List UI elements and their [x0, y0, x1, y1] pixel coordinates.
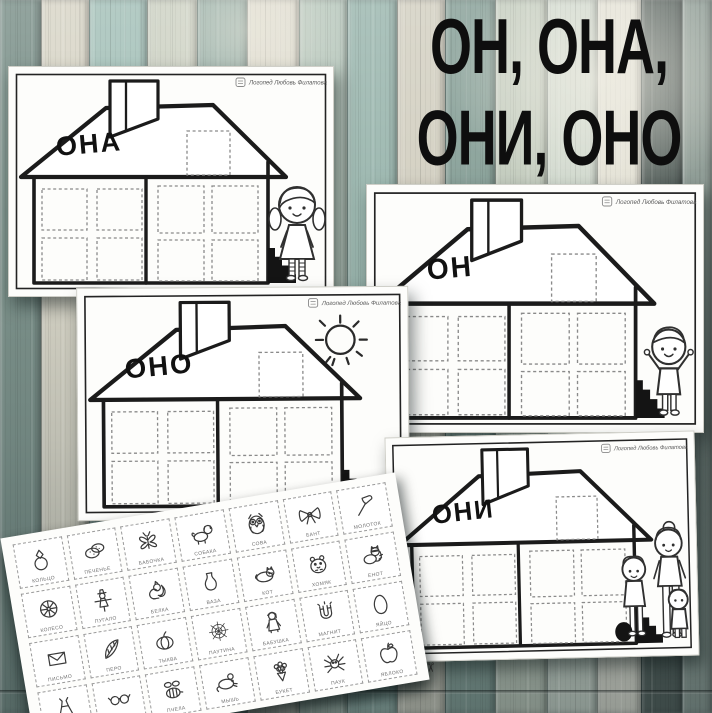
- cat-icon: [247, 557, 281, 589]
- card-label: КОЛЕСО: [40, 624, 64, 635]
- card-label: ПАУК: [331, 679, 346, 688]
- picture-card: БУКЕТ: [253, 648, 309, 701]
- feather-icon: [94, 633, 128, 665]
- picture-card: БЕЛКА: [129, 568, 185, 621]
- butterfly-icon: [131, 525, 165, 557]
- card-label: ПЧЕЛА: [167, 705, 187, 713]
- card-label: МЫШЬ: [221, 696, 240, 706]
- spiderweb-icon: [202, 615, 236, 647]
- hamster-icon: [301, 548, 335, 580]
- logo: Логопед Любовь Филатова: [602, 197, 697, 206]
- magnet-icon: [310, 597, 344, 629]
- picture-card: ТЫКВА: [137, 617, 193, 670]
- card-label: МАГНИТ: [318, 629, 342, 640]
- worksheet-oni: Логопед Любовь Филатова ОНИ: [384, 431, 699, 663]
- scarecrow-icon: [85, 584, 119, 616]
- picture-card: ПИСЬМО: [29, 635, 85, 688]
- picture-card: ЕНОТ: [345, 531, 401, 584]
- card-label: ХОМЯК: [312, 579, 333, 589]
- picture-card: МОЛОТОК: [336, 482, 392, 535]
- picture-card: ПЛАТЬЕ: [37, 684, 93, 713]
- apple-icon: [372, 637, 406, 669]
- mouse-icon: [210, 664, 244, 696]
- picture-card: МЫШЬ: [199, 657, 255, 710]
- hammer-icon: [347, 489, 381, 521]
- roof-label: ОН: [426, 250, 475, 287]
- card-label: ЯЙЦО: [375, 620, 392, 630]
- dog-icon: [185, 516, 219, 548]
- picture-card: ВАЗА: [183, 559, 239, 612]
- card-label: КОЛЬЦО: [32, 575, 56, 586]
- pumpkin-icon: [148, 624, 182, 656]
- roof-label: ОНО: [123, 347, 194, 384]
- spider-icon: [318, 646, 352, 678]
- card-label: БАБОЧКА: [138, 557, 165, 568]
- worksheet-page-ona: Логопед Любовь Филатова ОНА: [9, 67, 333, 296]
- owl-icon: [239, 507, 273, 539]
- card-label: ПЕРО: [106, 665, 123, 674]
- picture-card: ЯБЛОКО: [361, 630, 417, 683]
- picture-card: ПАУТИНА: [191, 608, 247, 661]
- picture-card: ПЕЧЕНЬЕ: [67, 527, 123, 580]
- worksheet-ona: Логопед Любовь Филатова ОНА: [8, 66, 334, 297]
- card-label: МОЛОТОК: [353, 520, 381, 531]
- logo-text: Логопед Любовь Филатова: [321, 300, 402, 308]
- card-label: БЕЛКА: [150, 607, 169, 617]
- title-line-2: ОНИ, ОНО: [386, 93, 712, 184]
- bee-icon: [156, 673, 190, 705]
- product-image: ОН, ОНА, ОНИ, ОНО Логопед Любовь Филатов…: [0, 0, 712, 713]
- scissors-icon: ✂: [422, 662, 438, 673]
- page-title: ОН, ОНА, ОНИ, ОНО: [386, 2, 712, 185]
- worksheet-on: Логопед Любовь Филатова ОН: [366, 184, 704, 433]
- picture-card: БАНТ: [282, 491, 338, 544]
- card-label: СОБАКА: [194, 548, 217, 559]
- picture-card: БАБОЧКА: [121, 518, 177, 571]
- picture-card: ОЧКИ: [91, 675, 147, 713]
- picture-card: ПЧЕЛА: [145, 666, 201, 713]
- picture-card: ЯЙЦО: [353, 581, 409, 634]
- dress-icon: [48, 691, 82, 713]
- envelope-icon: [40, 642, 74, 674]
- picture-card: МАГНИТ: [299, 590, 355, 643]
- ring-icon: [23, 543, 57, 575]
- card-label: ПИСЬМО: [48, 674, 73, 685]
- picture-card: БАБУШКА: [245, 599, 301, 652]
- card-label: БАБУШКА: [262, 637, 289, 648]
- roof-label: ОНА: [55, 126, 123, 162]
- picture-card: ПАУК: [307, 639, 363, 692]
- bow-icon: [293, 498, 327, 530]
- card-label: ПАУТИНА: [209, 646, 236, 657]
- card-label: БАНТ: [306, 531, 322, 540]
- squirrel-icon: [139, 575, 173, 607]
- picture-card: ХОМЯК: [291, 540, 347, 593]
- logo: Логопед Любовь Филатова: [308, 298, 401, 307]
- worksheet-page-oni: Логопед Любовь Филатова ОНИ: [386, 432, 699, 662]
- picture-card: КОЛЕСО: [21, 586, 77, 639]
- raccoon-icon: [355, 539, 389, 571]
- wheel-icon: [31, 593, 65, 625]
- bouquet-icon: [264, 655, 298, 687]
- worksheet-page-on: Логопед Любовь Филатова ОН: [367, 185, 703, 432]
- picture-card: КОЛЬЦО: [13, 536, 69, 589]
- cookies-icon: [77, 534, 111, 566]
- picture-card: ПЕРО: [83, 626, 139, 679]
- card-label: БУКЕТ: [275, 687, 294, 697]
- card-label: ЯБЛОКО: [380, 669, 404, 680]
- picture-card: СОВА: [228, 500, 284, 553]
- logo-text: Логопед Любовь Филатова: [248, 81, 328, 87]
- picture-card: ПУГАЛО: [75, 577, 131, 630]
- card-label: ЕНОТ: [368, 571, 384, 580]
- glasses-icon: [102, 682, 136, 713]
- card-label: КОТ: [262, 589, 274, 598]
- vase-icon: [193, 566, 227, 598]
- grandma-icon: [256, 606, 290, 638]
- picture-card: КОТ: [237, 550, 293, 603]
- title-line-1: ОН, ОНА,: [386, 2, 712, 93]
- card-label: ПУГАЛО: [94, 615, 117, 626]
- card-label: ТЫКВА: [158, 656, 178, 666]
- card-label: ПЕЧЕНЬЕ: [84, 566, 111, 577]
- logo-text: Логопед Любовь Филатова: [615, 198, 697, 206]
- egg-icon: [363, 588, 397, 620]
- picture-card: СОБАКА: [174, 509, 230, 562]
- card-label: ВАЗА: [206, 598, 221, 607]
- card-label: СОВА: [251, 540, 267, 549]
